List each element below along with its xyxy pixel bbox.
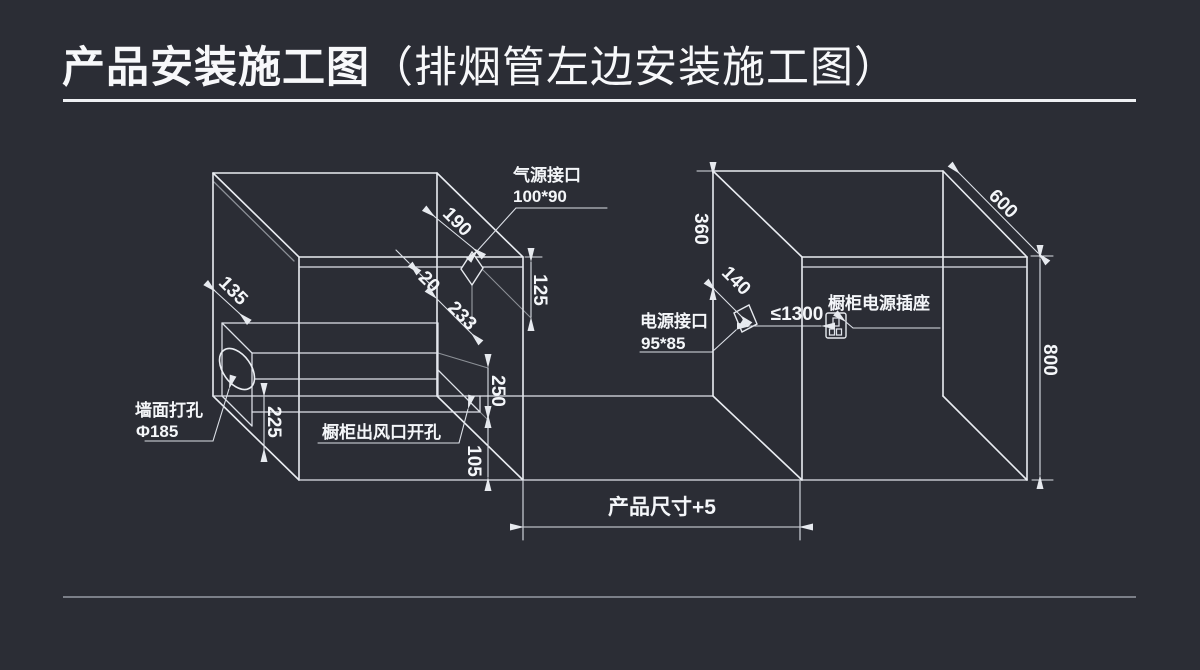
power-port <box>734 305 757 332</box>
power-port-label: 电源接口 95*85 <box>640 311 736 353</box>
dim-190-value: 190 <box>438 203 475 240</box>
right-box-top-left-diagonal <box>713 171 802 257</box>
dim-125-value: 125 <box>529 274 550 306</box>
left-box-bottom-left-diagonal <box>213 396 299 480</box>
dim-135-ext2 <box>239 313 248 322</box>
duct-bottom-left-diagonal <box>222 396 252 426</box>
wall-hole-ellipse <box>212 342 261 396</box>
dim-600-ext <box>954 168 960 174</box>
dim-20-value: 20 <box>414 267 444 297</box>
gas-port-label-line2: 100*90 <box>513 187 567 206</box>
dim-233-value: 233 <box>443 297 480 334</box>
installation-diagram-page: 产品安装施工图（排烟管左边安装施工图） <box>0 0 1200 670</box>
dim-233-ext <box>471 333 477 339</box>
dim-250-value: 250 <box>487 375 508 407</box>
dim-600: 600 <box>954 168 1053 256</box>
dim-800-value: 800 <box>1039 344 1060 376</box>
dim-140-ext <box>708 283 716 291</box>
dim-1300-value: ≤1300 <box>771 304 824 325</box>
dim-125: 125 <box>483 257 550 318</box>
left-box-top-left-diagonal-inner <box>214 182 294 261</box>
dim-1300: ≤1300 <box>751 304 823 326</box>
socket-label-text: 橱柜电源插座 <box>828 293 930 313</box>
dim-105-ext <box>480 412 488 420</box>
dim-product-value: 产品尺寸+5 <box>608 495 716 519</box>
right-box-bottom-right-diagonal <box>943 396 1027 480</box>
power-socket-icon <box>826 313 846 338</box>
dim-190-ext <box>429 211 435 217</box>
right-box-bottom-left-diagonal <box>713 396 802 480</box>
dim-225-value: 225 <box>263 406 284 438</box>
dim-190-ext2 <box>473 248 479 254</box>
vent-cutout-label: 橱柜出风口开孔 <box>318 409 468 443</box>
wall-hole-label-line2: Φ185 <box>136 422 178 441</box>
technical-drawing: 190 125 20 233 250 105 <box>0 0 1200 670</box>
gas-port-label: 气源接口 100*90 <box>478 165 607 250</box>
vent-duct <box>212 323 480 426</box>
power-port-leader <box>712 330 736 352</box>
dim-250-ext <box>438 353 488 368</box>
dim-233: 233 <box>437 297 481 339</box>
wall-hole-label-line1: 墙面打孔 <box>135 400 203 420</box>
dim-105-value: 105 <box>463 445 484 477</box>
left-box-top-left-diagonal <box>213 173 299 257</box>
power-port-opening <box>734 305 757 332</box>
power-port-label-line1: 电源接口 <box>640 311 708 331</box>
vent-cutout-label-text: 橱柜出风口开孔 <box>322 422 441 442</box>
socket-leader <box>846 322 940 328</box>
dim-360: 360 <box>690 171 716 286</box>
dim-product-size: 产品尺寸+5 <box>523 481 800 540</box>
dim-140-value: 140 <box>717 262 754 299</box>
dim-800: 800 <box>1032 259 1060 480</box>
duct-right-diagonal <box>438 370 480 412</box>
dim-600-value: 600 <box>984 185 1021 222</box>
gas-port-label-line1: 气源接口 <box>512 165 581 185</box>
dim-360-value: 360 <box>690 213 711 245</box>
wall-hole-leader <box>213 389 229 441</box>
dim-105: 105 <box>463 412 488 477</box>
dim-135-value: 135 <box>214 272 252 310</box>
power-port-label-line2: 95*85 <box>641 334 685 353</box>
